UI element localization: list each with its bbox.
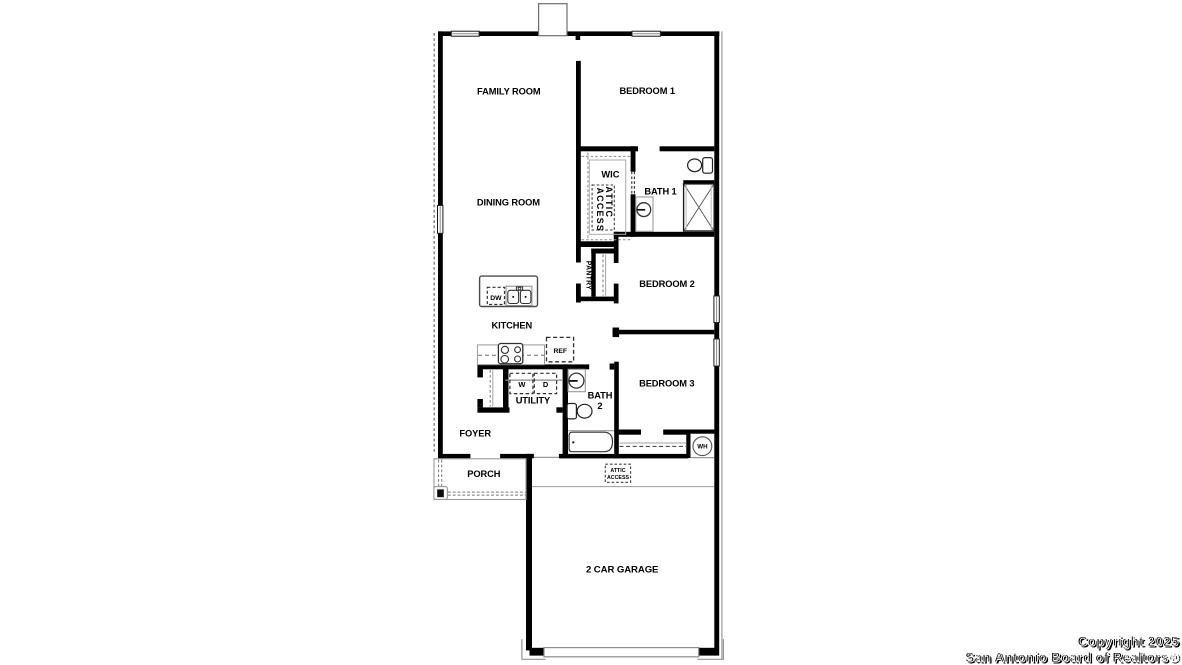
svg-text:REF: REF <box>553 348 567 355</box>
svg-text:W: W <box>518 380 526 389</box>
svg-text:BATH 1: BATH 1 <box>644 186 676 196</box>
svg-text:ACCESS: ACCESS <box>607 475 630 481</box>
svg-text:FAMILY ROOM: FAMILY ROOM <box>477 86 541 96</box>
svg-text:2 CAR GARAGE: 2 CAR GARAGE <box>586 565 659 576</box>
svg-text:WH: WH <box>697 444 708 451</box>
svg-text:BEDROOM 1: BEDROOM 1 <box>619 86 674 96</box>
svg-text:Copyright 2025: Copyright 2025 <box>1077 633 1178 649</box>
svg-text:BEDROOM 2: BEDROOM 2 <box>639 279 694 289</box>
svg-text:San Antonio Board of Realtors®: San Antonio Board of Realtors® <box>965 649 1179 665</box>
svg-text:PORCH: PORCH <box>467 469 500 479</box>
svg-text:FOYER: FOYER <box>459 429 491 439</box>
svg-text:ATTIC: ATTIC <box>610 468 625 474</box>
svg-text:WIC: WIC <box>601 170 619 180</box>
svg-text:DW: DW <box>490 295 502 302</box>
svg-text:DINING ROOM: DINING ROOM <box>477 198 540 208</box>
svg-text:2: 2 <box>597 401 602 411</box>
svg-text:UTILITY: UTILITY <box>516 395 551 405</box>
svg-text:PANTRY: PANTRY <box>584 261 591 290</box>
svg-text:BATH: BATH <box>588 391 613 401</box>
svg-text:ACCESS: ACCESS <box>595 188 605 232</box>
svg-text:KITCHEN: KITCHEN <box>491 321 532 331</box>
svg-text:D: D <box>543 380 549 389</box>
svg-text:BEDROOM 3: BEDROOM 3 <box>639 378 694 388</box>
